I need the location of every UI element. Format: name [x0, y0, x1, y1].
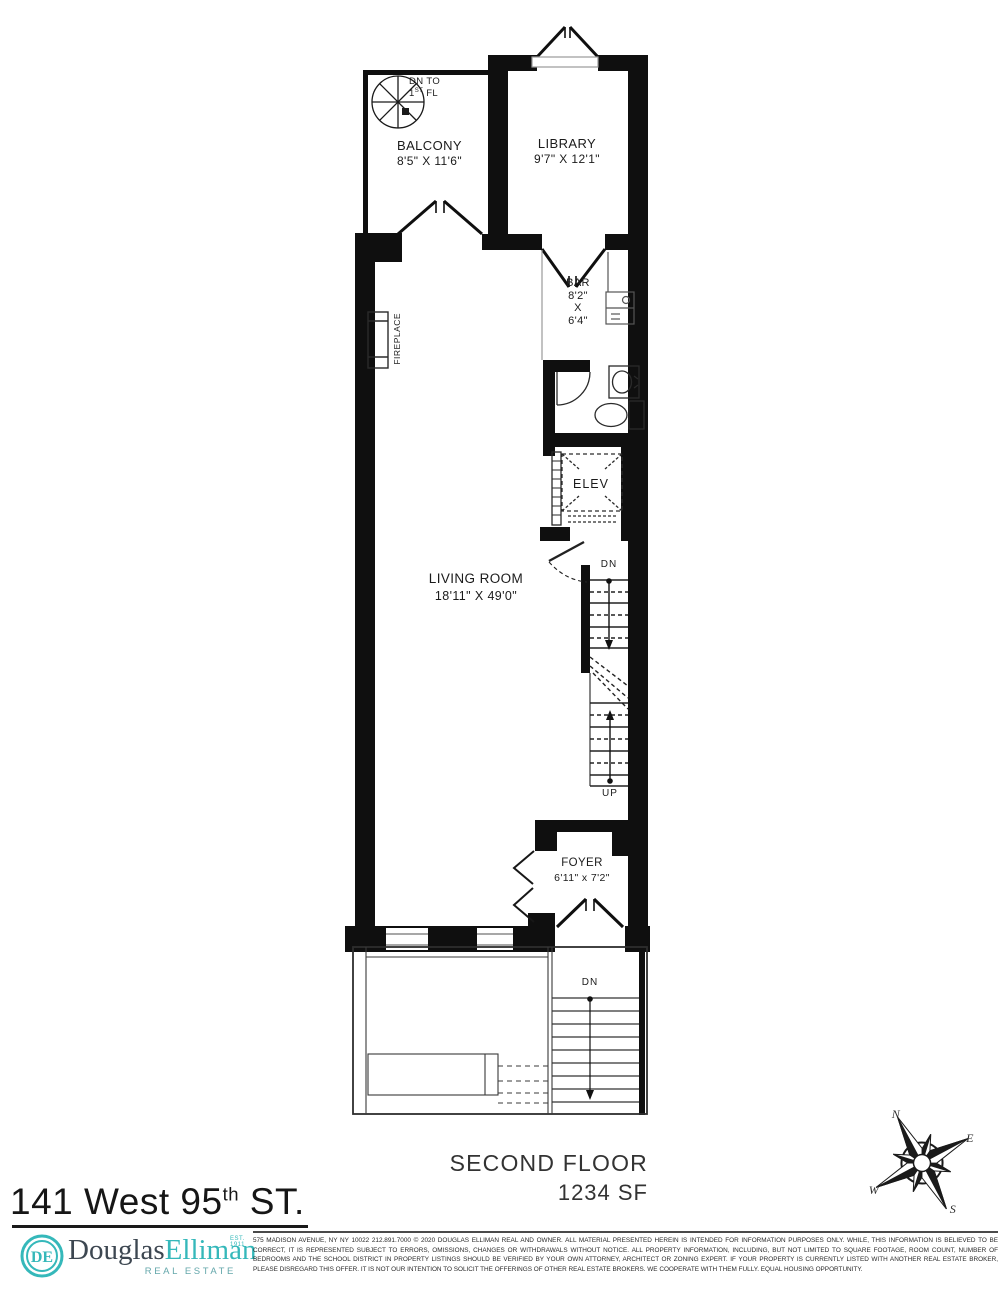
brand-name: DouglasElliman: [68, 1234, 257, 1267]
living-room-label: LIVING ROOM: [395, 571, 557, 586]
spiral-stair-note-line2: 1ST FL: [409, 88, 461, 100]
fireplace-label: FIREPLACE: [393, 304, 403, 374]
brand-monogram-icon: DE: [18, 1232, 66, 1280]
floor-area: 1234 SF: [400, 1180, 648, 1206]
floor-summary: SECOND FLOOR 1234 SF: [400, 1150, 648, 1206]
floor-plan-page: BALCONY 8'5" X 11'6" LIBRARY 9'7" X 12'1…: [0, 0, 1000, 1295]
stair-up-arrow: [606, 710, 614, 784]
legal-disclaimer: 575 MADISON AVENUE, NY NY 10022 212.891.…: [253, 1231, 998, 1274]
stair-down-label: DN: [593, 559, 625, 570]
compass-rose-icon: [852, 1093, 993, 1234]
balcony-label: BALCONY: [362, 139, 497, 154]
spiral-stair-note-line1: DN TO: [409, 76, 461, 88]
floor-plan-drawing: [0, 0, 1000, 1295]
compass-north-label: N: [888, 1108, 904, 1121]
bar-depth: 6'4": [549, 315, 607, 328]
bar-label-block: BAR 8'2" X 6'4": [549, 277, 607, 327]
living-room-dims: 18'11" X 49'0": [395, 589, 557, 603]
balcony-dims: 8'5" X 11'6": [362, 155, 497, 168]
facade-windows: [386, 926, 625, 953]
foyer-open-passage: [514, 851, 534, 922]
compass-south-label: S: [945, 1203, 961, 1216]
stair-up-label: UP: [594, 788, 626, 799]
exterior-stair-down-label: DN: [574, 977, 606, 988]
foyer-dims: 6'11" x 7'2": [534, 873, 630, 885]
library-label: LIBRARY: [508, 137, 626, 152]
floor-name: SECOND FLOOR: [400, 1150, 648, 1177]
brand-monogram: DE: [31, 1249, 53, 1266]
library-dims: 9'7" X 12'1": [508, 153, 626, 166]
compass-west-label: W: [866, 1184, 882, 1197]
foyer-label: FOYER: [534, 857, 630, 870]
spiral-stair-note: DN TO 1ST FL: [409, 76, 461, 100]
bar-width: 8'2": [549, 290, 607, 303]
bar-by: X: [549, 302, 607, 315]
page-title: 141 West 95th ST.: [10, 1181, 305, 1223]
title-underline: [12, 1225, 308, 1228]
bar-label: BAR: [549, 277, 607, 290]
stair-down-arrow: [605, 578, 613, 650]
exterior-stairs: [552, 996, 639, 1102]
brand-tagline: REAL ESTATE: [140, 1266, 236, 1277]
brand-logo: DE DouglasElliman EST. 1911 REAL ESTATE: [18, 1232, 258, 1284]
elevator-label: ELEV: [560, 477, 622, 491]
compass-east-label: E: [962, 1132, 978, 1145]
exterior-down-arrow: [586, 996, 594, 1100]
